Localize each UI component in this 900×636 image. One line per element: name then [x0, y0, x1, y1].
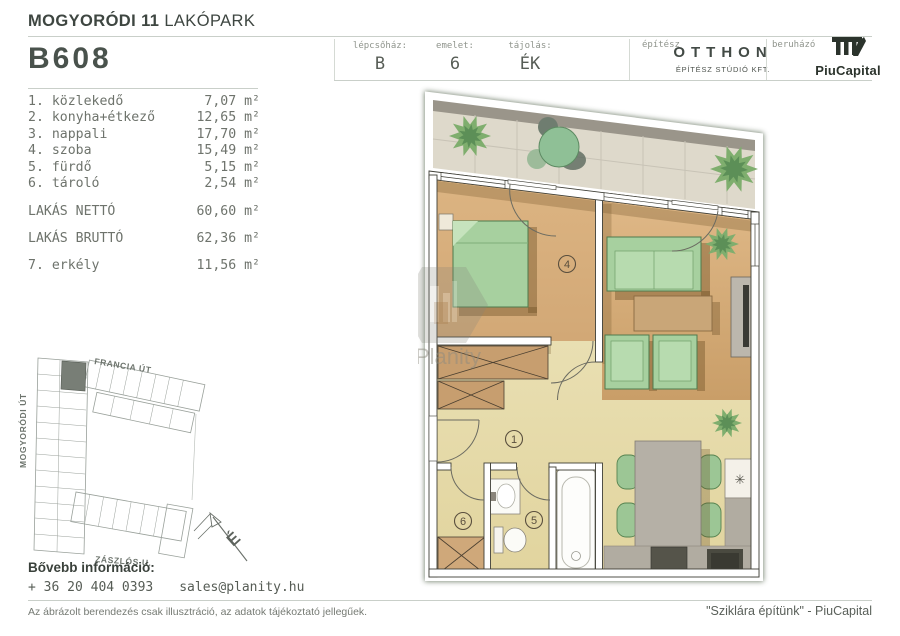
slogan: "Sziklára építünk" - PiuCapital — [706, 604, 872, 618]
meta-staircase: lépcsőház: B — [340, 41, 420, 74]
contact-line: + 36 20 404 0393sales@planity.hu — [28, 580, 330, 595]
project-title: MOGYORÓDI 11 LAKÓPARK — [28, 12, 255, 31]
meta-staircase-label: lépcsőház: — [340, 41, 420, 51]
svg-text:6: 6 — [460, 516, 466, 528]
room-name: 5. fürdő — [28, 160, 92, 176]
room-area: 12,65 m² — [196, 110, 260, 126]
meta-separator — [334, 39, 335, 80]
room-name: 6. tároló — [28, 176, 99, 192]
room-name: 1. közlekedő — [28, 94, 123, 110]
phone: + 36 20 404 0393 — [28, 580, 153, 595]
total-name: LAKÁS BRUTTÓ — [28, 231, 123, 247]
toilet — [504, 528, 526, 552]
site-highlighted-unit — [61, 361, 86, 391]
architect-subtitle: ÉPÍTÉSZ STÚDIÓ KFT. — [668, 65, 778, 74]
north-arrow: É — [194, 513, 247, 561]
meta-staircase-value: B — [340, 54, 420, 74]
total-area: 62,36 m² — [196, 231, 260, 247]
room-row: 5. fürdő5,15 m² — [28, 160, 260, 176]
site-building-bottom-wing — [68, 488, 193, 558]
architect-name: OTTHON — [668, 44, 778, 61]
svg-text:5: 5 — [531, 515, 537, 527]
architect-logo: OTTHON ÉPÍTÉSZ STÚDIÓ KFT. — [668, 44, 778, 74]
total-gross-row: LAKÁS BRUTTÓ62,36 m² — [28, 231, 260, 247]
nightstand — [439, 214, 453, 230]
room-area: 11,56 m² — [196, 258, 260, 274]
room-name: 4. szoba — [28, 143, 92, 159]
developer-name: PiuCapital — [812, 63, 884, 78]
unit-id: B608 — [28, 42, 112, 76]
room-list: 1. közlekedő7,07 m² 2. konyha+étkező12,6… — [28, 94, 260, 275]
meta-floor-label: emelet: — [420, 41, 490, 51]
total-area: 60,60 m² — [196, 204, 260, 220]
project-title-bold: MOGYORÓDI 11 — [28, 12, 159, 30]
coffee-table — [634, 296, 712, 331]
room-row: 4. szoba15,49 m² — [28, 143, 260, 159]
developer-label: beruházó — [772, 40, 815, 50]
tv — [743, 285, 749, 347]
storage-shelf — [438, 537, 485, 574]
room-row: 3. nappali17,70 m² — [28, 127, 260, 143]
header-divider — [28, 36, 872, 37]
meta-floor: emelet: 6 — [420, 41, 490, 74]
room-name: 2. konyha+étkező — [28, 110, 155, 126]
info-label: Bővebb információ: — [28, 560, 155, 575]
balcony-table — [539, 127, 579, 167]
room-name: 7. erkély — [28, 258, 99, 274]
watermark-text: Planity — [418, 344, 481, 369]
room-area: 7,07 m² — [204, 94, 260, 110]
svg-text:1: 1 — [511, 434, 517, 446]
developer-logo: PiuCapital — [812, 36, 884, 78]
room-area: 15,49 m² — [196, 143, 260, 159]
north-label: É — [223, 528, 244, 550]
street-label-left: MOGYORÓDI ÚT — [17, 393, 28, 468]
svg-text:4: 4 — [564, 259, 570, 271]
room-area: 5,15 m² — [204, 160, 260, 176]
kitchen-counter-right — [725, 498, 755, 547]
floor-plan: ✳ — [418, 84, 772, 594]
room-name: 3. nappali — [28, 127, 107, 143]
room-area: 2,54 m² — [204, 176, 260, 192]
room-area: 17,70 m² — [196, 127, 260, 143]
sink-symbol: ✳ — [735, 472, 746, 487]
piucapital-icon — [828, 36, 868, 62]
project-title-light: LAKÓPARK — [159, 12, 255, 30]
meta-orientation: tájolás: ÉK — [492, 41, 568, 74]
email: sales@planity.hu — [179, 580, 304, 595]
brand-separator-1 — [629, 39, 630, 80]
street-label-top: FRANCIA ÚT — [94, 355, 153, 375]
brand-separator-2 — [766, 39, 767, 80]
total-name: LAKÁS NETTÓ — [28, 204, 115, 220]
room-row: 6. tároló2,54 m² — [28, 176, 260, 192]
floorplan-sheet: MOGYORÓDI 11 LAKÓPARK B608 lépcsőház: B … — [0, 0, 900, 636]
balcony-row: 7. erkély11,56 m² — [28, 258, 260, 274]
room-row: 2. konyha+étkező12,65 m² — [28, 110, 260, 126]
dining-table — [635, 441, 701, 547]
disclaimer: Az ábrázolt berendezés csak illusztráció… — [28, 606, 367, 618]
toilet-tank — [494, 527, 503, 553]
unit-id-underline — [28, 88, 258, 89]
site-courtyard-edge — [192, 414, 196, 500]
meta-underline — [334, 80, 872, 81]
meta-floor-value: 6 — [420, 54, 490, 74]
footer-divider — [28, 600, 872, 601]
room-row: 1. közlekedő7,07 m² — [28, 94, 260, 110]
meta-orientation-label: tájolás: — [492, 41, 568, 51]
total-net-row: LAKÁS NETTÓ60,60 m² — [28, 204, 260, 220]
site-plan: FRANCIA ÚT MOGYORÓDI ÚT ZÁSZLÓS U. É — [10, 335, 270, 575]
meta-orientation-value: ÉK — [492, 54, 568, 74]
